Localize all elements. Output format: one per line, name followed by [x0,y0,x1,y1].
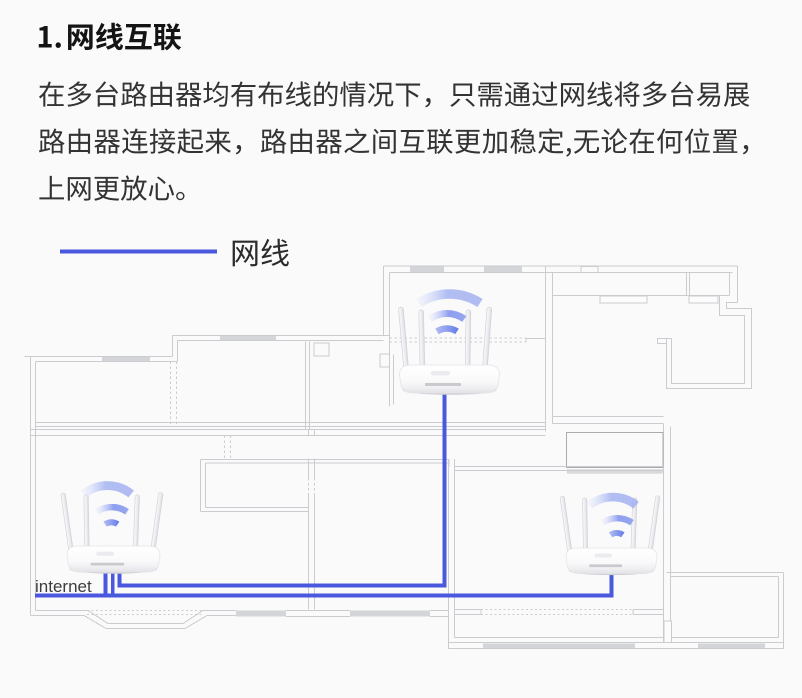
svg-text:internet: internet [35,577,92,596]
